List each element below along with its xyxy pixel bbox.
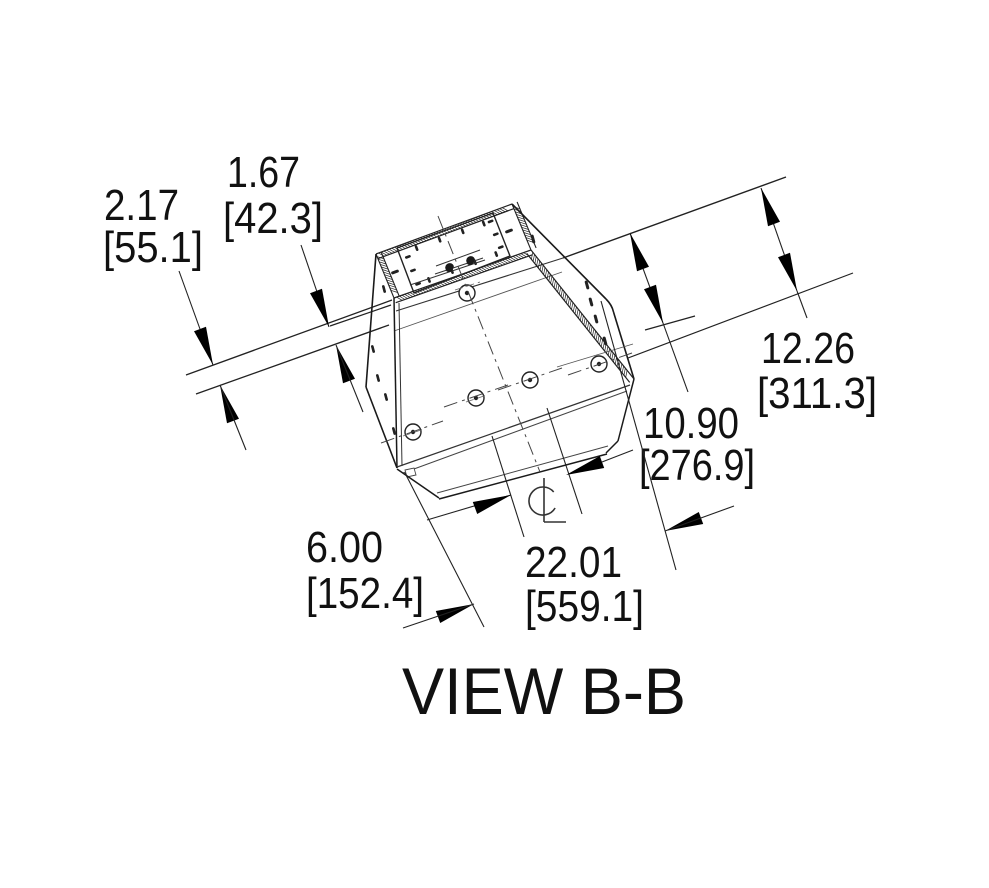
svg-text:[42.3]: [42.3] <box>223 194 323 243</box>
svg-text:22.01: 22.01 <box>525 538 622 587</box>
svg-text:[152.4]: [152.4] <box>306 569 424 618</box>
svg-text:[55.1]: [55.1] <box>103 223 203 272</box>
svg-text:[559.1]: [559.1] <box>525 582 644 631</box>
svg-text:[276.9]: [276.9] <box>639 441 755 490</box>
svg-text:12.26: 12.26 <box>761 324 855 373</box>
svg-text:[311.3]: [311.3] <box>757 369 877 418</box>
svg-text:6.00: 6.00 <box>306 523 383 572</box>
svg-text:VIEW B-B: VIEW B-B <box>402 654 686 728</box>
svg-text:1.67: 1.67 <box>227 148 300 197</box>
